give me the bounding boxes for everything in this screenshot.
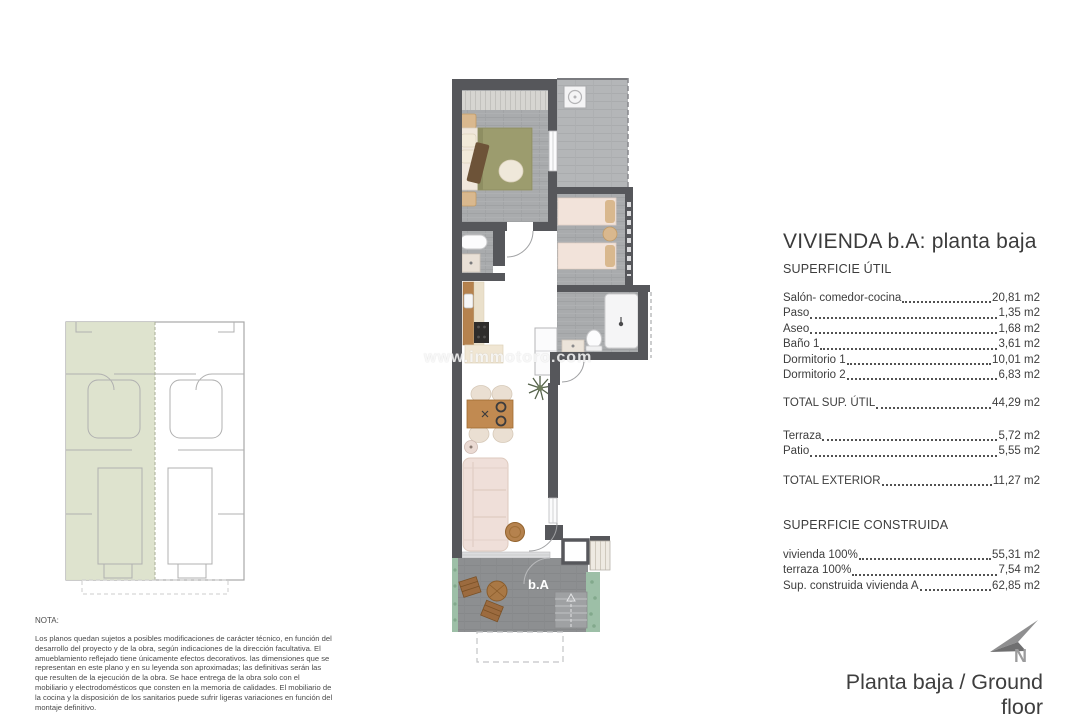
watermark: www.immotoro.com — [424, 349, 604, 367]
sofa — [463, 458, 508, 551]
area-label: Aseo — [783, 322, 809, 337]
area-label: Patio — [783, 444, 809, 459]
main-floor-plan-drawing: b.A — [440, 70, 670, 670]
dotted-leader — [852, 574, 997, 576]
unit-label: b.A — [528, 577, 550, 592]
superficie-util-list: Salón- comedor-cocina 20,81 m2 Paso 1,35… — [783, 291, 1040, 383]
info-panel: VIVIENDA b.A: planta baja SUPERFICIE ÚTI… — [783, 229, 1040, 594]
exterior-list: Terraza 5,72 m2 Patio 5,55 m2 — [783, 429, 1040, 460]
area-label: Sup. construida vivienda A — [783, 579, 919, 594]
area-label: TOTAL EXTERIOR — [783, 474, 881, 489]
area-row: Baño 1 3,61 m2 — [783, 337, 1040, 352]
nota-label: NOTA: — [35, 616, 333, 626]
area-row: terraza 100% 7,54 m2 — [783, 563, 1040, 578]
north-label: N — [1014, 646, 1027, 667]
dotted-leader — [882, 484, 992, 486]
bedroom2 — [557, 188, 625, 285]
sliding-door — [462, 552, 550, 558]
bedroom1 — [460, 90, 552, 222]
area-label: vivienda 100% — [783, 548, 858, 563]
area-value: 10,01 m2 — [992, 353, 1040, 368]
dashed-projection — [477, 632, 563, 662]
bathtub-icon — [460, 235, 487, 249]
sink-icon — [462, 254, 480, 272]
key-plan-drawing — [62, 318, 248, 600]
area-label: Baño 1 — [783, 337, 819, 352]
stairs — [555, 592, 587, 628]
dotted-leader — [847, 378, 998, 380]
area-value: 44,29 m2 — [992, 396, 1040, 411]
floor-plan-sheet: b.A — [0, 0, 1080, 720]
nightstand — [461, 114, 476, 128]
single-bed — [558, 198, 616, 225]
area-label: Dormitorio 2 — [783, 368, 846, 383]
dining-set — [467, 386, 513, 443]
area-row: Dormitorio 1 10,01 m2 — [783, 353, 1040, 368]
louver-panel — [590, 541, 610, 570]
aseo — [460, 230, 493, 273]
area-value: 3,61 m2 — [998, 337, 1040, 352]
double-bed — [460, 128, 532, 190]
total-util-row: TOTAL SUP. ÚTIL 44,29 m2 — [783, 396, 1040, 411]
area-value: 20,81 m2 — [992, 291, 1040, 306]
key-plan — [62, 318, 248, 600]
outdoor-table — [487, 581, 507, 601]
area-value: 11,27 m2 — [993, 474, 1040, 489]
area-value: 6,83 m2 — [998, 368, 1040, 383]
superficie-construida-heading: SUPERFICIE CONSTRUIDA — [783, 518, 1040, 532]
wardrobe — [462, 91, 548, 110]
area-row: Paso 1,35 m2 — [783, 306, 1040, 321]
area-row: Aseo 1,68 m2 — [783, 322, 1040, 337]
area-label: Salón- comedor-cocina — [783, 291, 901, 306]
area-label: Paso — [783, 306, 809, 321]
dotted-leader — [810, 317, 997, 319]
nota-block: NOTA: Los planos quedan sujetos a posibl… — [35, 616, 333, 712]
area-value: 62,85 m2 — [992, 579, 1040, 594]
area-value: 55,31 m2 — [992, 548, 1040, 563]
dotted-leader — [902, 301, 991, 303]
washing-machine-icon — [564, 86, 586, 108]
area-value: 7,54 m2 — [998, 563, 1040, 578]
dotted-leader — [822, 439, 997, 441]
kitchen-sink-icon — [464, 294, 473, 308]
superficie-util-heading: SUPERFICIE ÚTIL — [783, 262, 1040, 276]
area-label: Dormitorio 1 — [783, 353, 846, 368]
area-row: vivienda 100% 55,31 m2 — [783, 548, 1040, 563]
main-floor-plan: b.A — [440, 70, 670, 670]
dotted-leader — [876, 407, 991, 409]
single-bed — [558, 243, 616, 269]
area-row: Sup. construida vivienda A 62,85 m2 — [783, 579, 1040, 594]
area-row: Dormitorio 2 6,83 m2 — [783, 368, 1040, 383]
dotted-leader — [820, 348, 997, 350]
area-row: Salón- comedor-cocina 20,81 m2 — [783, 291, 1040, 306]
dotted-leader — [810, 332, 997, 334]
area-label: terraza 100% — [783, 563, 851, 578]
toilet-icon — [586, 330, 602, 351]
dotted-leader — [810, 455, 997, 457]
area-value: 5,55 m2 — [998, 444, 1040, 459]
total-exterior-row: TOTAL EXTERIOR 11,27 m2 — [783, 474, 1040, 489]
patio-area — [557, 78, 628, 188]
nota-body: Los planos quedan sujetos a posibles mod… — [35, 634, 333, 712]
side-table — [465, 441, 478, 454]
stove-icon — [474, 322, 489, 343]
dining-table — [467, 400, 513, 428]
area-value: 1,35 m2 — [998, 306, 1040, 321]
area-row: Terraza 5,72 m2 — [783, 429, 1040, 444]
pouf — [499, 160, 523, 182]
coffee-table — [506, 523, 525, 542]
dotted-leader — [920, 589, 992, 591]
nightstand — [461, 192, 476, 206]
dotted-leader — [847, 363, 991, 365]
area-value: 5,72 m2 — [998, 429, 1040, 444]
dotted-leader — [859, 558, 991, 560]
superficie-construida-list: vivienda 100% 55,31 m2 terraza 100% 7,54… — [783, 548, 1040, 594]
area-label: Terraza — [783, 429, 821, 444]
nightstand — [603, 227, 617, 241]
page-title: VIVIENDA b.A: planta baja — [783, 229, 1040, 255]
area-row: Patio 5,55 m2 — [783, 444, 1040, 459]
area-value: 1,68 m2 — [998, 322, 1040, 337]
floor-caption: Planta baja / Ground floor — [800, 670, 1043, 720]
terrace: b.A — [452, 558, 600, 632]
area-label: TOTAL SUP. ÚTIL — [783, 396, 875, 411]
